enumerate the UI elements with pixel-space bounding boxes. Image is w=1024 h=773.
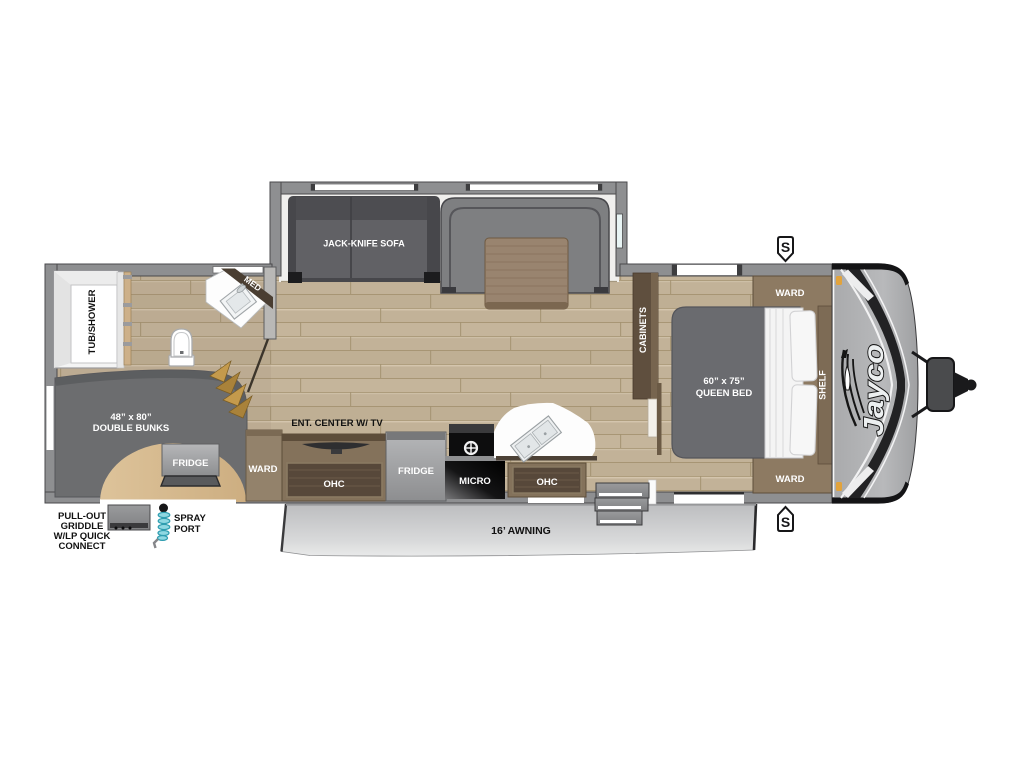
- svg-text:S: S: [781, 239, 790, 255]
- svg-text:OHC: OHC: [323, 479, 344, 490]
- svg-text:CABINETS: CABINETS: [638, 307, 648, 353]
- svg-text:FRIDGE: FRIDGE: [398, 466, 434, 477]
- svg-text:WARD: WARD: [775, 288, 804, 299]
- svg-text:Jayco: Jayco: [858, 344, 889, 436]
- svg-text:FRIDGE: FRIDGE: [173, 458, 209, 469]
- svg-text:48” x 80”: 48” x 80”: [110, 412, 151, 423]
- svg-text:60” x 75”: 60” x 75”: [703, 376, 744, 387]
- svg-text:S: S: [781, 514, 790, 530]
- svg-text:SPRAY: SPRAY: [174, 513, 207, 524]
- svg-text:QUEEN BED: QUEEN BED: [696, 388, 753, 399]
- svg-text:TUB/SHOWER: TUB/SHOWER: [87, 289, 98, 354]
- svg-text:MICRO: MICRO: [459, 476, 491, 487]
- svg-text:OHC: OHC: [536, 477, 557, 488]
- svg-text:DOUBLE BUNKS: DOUBLE BUNKS: [93, 423, 170, 434]
- svg-text:16’ AWNING: 16’ AWNING: [491, 525, 551, 537]
- svg-text:WARD: WARD: [775, 474, 804, 485]
- svg-text:ENT. CENTER W/ TV: ENT. CENTER W/ TV: [291, 418, 383, 429]
- svg-text:CONNECT: CONNECT: [59, 541, 106, 552]
- svg-text:JACK-KNIFE SOFA: JACK-KNIFE SOFA: [323, 239, 405, 249]
- svg-text:WARD: WARD: [248, 464, 277, 475]
- svg-text:PORT: PORT: [174, 524, 201, 535]
- svg-text:SHELF: SHELF: [818, 370, 828, 400]
